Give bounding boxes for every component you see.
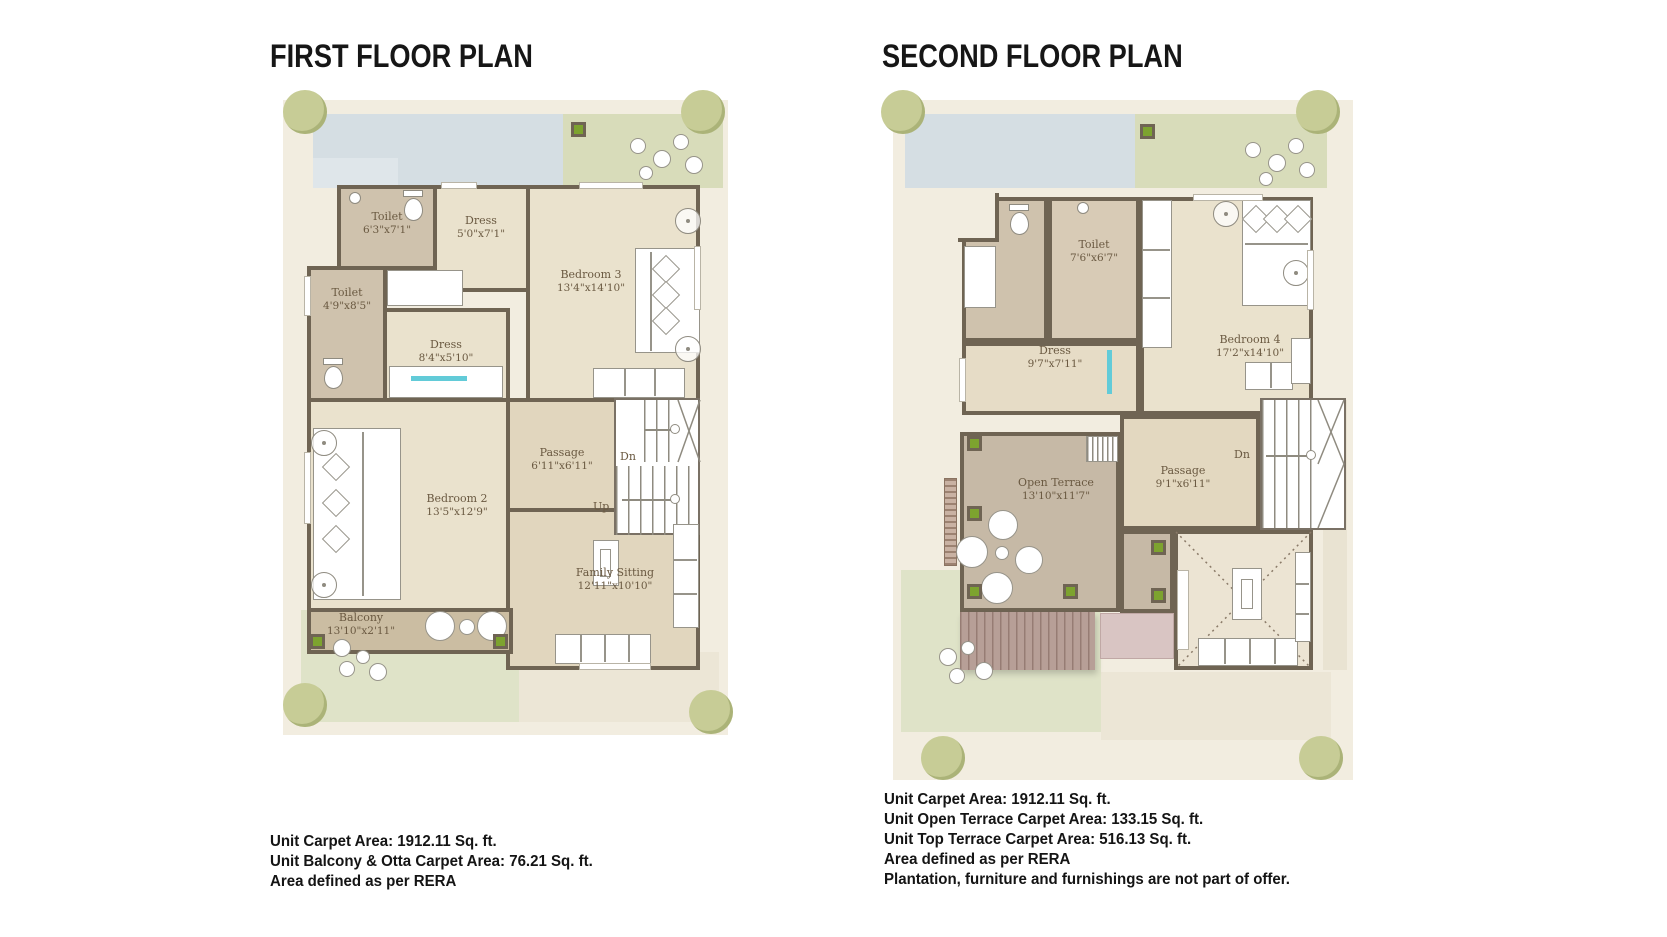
room-dims: 5'0"x7'1" bbox=[441, 228, 521, 241]
planter-icon bbox=[493, 634, 508, 649]
planter-icon bbox=[967, 436, 982, 451]
room-name: Dress bbox=[1015, 344, 1095, 358]
room-dims: 13'10"x2'11" bbox=[319, 625, 403, 638]
room-name: Family Sitting bbox=[560, 566, 670, 580]
garden-chair-icon bbox=[356, 650, 370, 664]
room-name: Toilet bbox=[309, 286, 385, 300]
garden-chair-icon bbox=[975, 662, 993, 680]
footer-line: Area defined as per RERA bbox=[270, 872, 593, 892]
garden-chair-icon bbox=[339, 661, 355, 677]
toilet-wc-icon bbox=[321, 358, 345, 392]
paved-yard bbox=[905, 114, 1135, 188]
window bbox=[579, 663, 651, 670]
window bbox=[1193, 194, 1263, 201]
dress-label: Dress 9'7"x7'11" bbox=[1015, 344, 1095, 371]
garden-chair-icon bbox=[1245, 142, 1261, 158]
dress-a-label: Dress 5'0"x7'1" bbox=[441, 214, 521, 241]
room-dims: 6'11"x6'11" bbox=[522, 460, 602, 473]
garden-chair-icon bbox=[1259, 172, 1273, 186]
second-floor-plan: Toilet 7'6"x6'7" Dress 9'7"x7'11" Bedroo… bbox=[893, 100, 1353, 780]
stairs-down-label: Dn bbox=[1234, 448, 1250, 461]
ceiling-light-icon bbox=[1213, 201, 1239, 227]
room-name: Dress bbox=[441, 214, 521, 228]
stairs-up-label: Up bbox=[593, 500, 609, 513]
footer-line: Unit Balcony & Otta Carpet Area: 76.21 S… bbox=[270, 852, 593, 872]
ceiling-light-icon bbox=[675, 336, 701, 362]
second-floor-title: SECOND FLOOR PLAN bbox=[882, 38, 1183, 75]
garden-chair-icon bbox=[961, 641, 975, 655]
family-sitting-label: Family Sitting 12'11"x10'10" bbox=[560, 566, 670, 593]
planter-icon bbox=[1151, 588, 1166, 603]
room-name: Balcony bbox=[319, 611, 403, 625]
room-dims: 13'4"x14'10" bbox=[541, 282, 641, 295]
stair-winder-lines bbox=[616, 400, 702, 537]
tv-unit-icon bbox=[555, 634, 651, 664]
shower-icon bbox=[1077, 202, 1089, 214]
tree-icon bbox=[283, 90, 327, 134]
room-name: Bedroom 4 bbox=[1200, 333, 1300, 347]
footer-line: Unit Carpet Area: 1912.11 Sq. ft. bbox=[884, 790, 1290, 810]
garden-chair-icon bbox=[369, 663, 387, 681]
toilet-wc-icon bbox=[1007, 204, 1031, 238]
garden-chair-icon bbox=[653, 150, 671, 168]
open-terrace-label: Open Terrace 13'10"x11'7" bbox=[996, 476, 1116, 503]
room-name: Bedroom 2 bbox=[417, 492, 497, 506]
tree-icon bbox=[1299, 736, 1343, 780]
sofa-icon bbox=[1295, 552, 1311, 642]
planter-icon bbox=[310, 634, 325, 649]
first-floor-footer: Unit Carpet Area: 1912.11 Sq. ft. Unit B… bbox=[270, 832, 593, 892]
footer-line: Plantation, furniture and furnishings ar… bbox=[884, 870, 1290, 890]
room-dims: 8'4"x5'10" bbox=[406, 352, 486, 365]
tree-icon bbox=[681, 90, 725, 134]
garden-chair-icon bbox=[333, 639, 351, 657]
window bbox=[959, 358, 966, 402]
bed-icon bbox=[1242, 200, 1311, 306]
balcony-table-icon bbox=[459, 619, 475, 635]
footer-line: Unit Carpet Area: 1912.11 Sq. ft. bbox=[270, 832, 593, 852]
landing-slab bbox=[1100, 613, 1174, 659]
yard-bottom-right bbox=[1101, 672, 1331, 740]
planter-icon bbox=[571, 122, 586, 137]
towel-rail-icon bbox=[411, 376, 467, 381]
shower-icon bbox=[349, 192, 361, 204]
room-dims: 9'1"x6'11" bbox=[1143, 478, 1223, 491]
footer-line: Unit Top Terrace Carpet Area: 516.13 Sq.… bbox=[884, 830, 1290, 850]
sofa-icon bbox=[673, 524, 699, 628]
footer-line: Unit Open Terrace Carpet Area: 133.15 Sq… bbox=[884, 810, 1290, 830]
planter-icon bbox=[1151, 540, 1166, 555]
wardrobe-icon bbox=[1142, 200, 1172, 348]
terrace-chair-icon bbox=[1015, 546, 1043, 574]
towel-rail-icon bbox=[1107, 350, 1112, 394]
balcony-label: Balcony 13'10"x2'11" bbox=[319, 611, 403, 638]
room-dims: 6'3"x7'1" bbox=[347, 224, 427, 237]
dress-b-label: Dress 8'4"x5'10" bbox=[406, 338, 486, 365]
second-floor-footer: Unit Carpet Area: 1912.11 Sq. ft. Unit O… bbox=[884, 790, 1290, 890]
garden-chair-icon bbox=[1288, 138, 1304, 154]
garden-chair-icon bbox=[939, 648, 957, 666]
terrace-door bbox=[1177, 570, 1189, 650]
staircase bbox=[614, 398, 700, 535]
planter-icon bbox=[1140, 124, 1155, 139]
tree-icon bbox=[921, 736, 965, 780]
building-corner-cut bbox=[958, 193, 999, 242]
stair-winder-lines bbox=[1262, 400, 1348, 532]
tree-icon bbox=[1296, 90, 1340, 134]
garden-chair-icon bbox=[1299, 162, 1315, 178]
paved-yard-step bbox=[313, 158, 398, 188]
tree-icon bbox=[283, 683, 327, 727]
bedroom3-label: Bedroom 3 13'4"x14'10" bbox=[541, 268, 641, 295]
garden-chair-icon bbox=[673, 134, 689, 150]
first-floor-title: FIRST FLOOR PLAN bbox=[270, 38, 533, 75]
planter-icon bbox=[967, 584, 982, 599]
bedroom4-label: Bedroom 4 17'2"x14'10" bbox=[1200, 333, 1300, 360]
floor-plan-sheet: FIRST FLOOR PLAN SECOND FLOOR PLAN bbox=[0, 0, 1667, 937]
room-dims: 7'6"x6'7" bbox=[1054, 252, 1134, 265]
footer-line: Area defined as per RERA bbox=[884, 850, 1290, 870]
window bbox=[579, 182, 643, 189]
planter-icon bbox=[967, 506, 982, 521]
basin-counter bbox=[387, 270, 463, 306]
dresser-icon bbox=[593, 368, 685, 398]
toilet-b-label: Toilet 4'9"x8'5" bbox=[309, 286, 385, 313]
dresser-icon bbox=[1245, 362, 1293, 390]
room-name: Passage bbox=[1143, 464, 1223, 478]
window bbox=[304, 452, 311, 524]
ladder-icon bbox=[1086, 436, 1118, 462]
staircase bbox=[1260, 398, 1346, 530]
room-dims: 13'10"x11'7" bbox=[996, 490, 1116, 503]
window bbox=[1307, 250, 1314, 310]
window bbox=[441, 182, 477, 189]
terrace-chair-icon bbox=[981, 572, 1013, 604]
closet-icon bbox=[389, 366, 503, 398]
room-name: Toilet bbox=[1054, 238, 1134, 252]
window bbox=[694, 246, 701, 310]
room-dims: 13'5"x12'9" bbox=[417, 506, 497, 519]
wall bbox=[995, 193, 999, 242]
room-dims: 17'2"x14'10" bbox=[1200, 347, 1300, 360]
balcony-chair-icon bbox=[425, 611, 455, 641]
ceiling-light-icon bbox=[1283, 260, 1309, 286]
toilet-label: Toilet 7'6"x6'7" bbox=[1054, 238, 1134, 265]
garden-chair-icon bbox=[685, 156, 703, 174]
toilet-a-label: Toilet 6'3"x7'1" bbox=[347, 210, 427, 237]
ceiling-light-icon bbox=[311, 572, 337, 598]
garden-chair-icon bbox=[949, 668, 965, 684]
room-dims: 9'7"x7'11" bbox=[1015, 358, 1095, 371]
exterior-steps bbox=[960, 612, 1095, 670]
passage-label: Passage 9'1"x6'11" bbox=[1143, 464, 1223, 491]
garden-chair-icon bbox=[1268, 154, 1286, 172]
tree-icon bbox=[689, 690, 733, 734]
basin-counter bbox=[964, 246, 996, 308]
room-name: Toilet bbox=[347, 210, 427, 224]
room-toilet bbox=[1048, 197, 1140, 342]
first-floor-plan: Toilet 6'3"x7'1" Dress 5'0"x7'1" Bedroom… bbox=[283, 100, 728, 735]
planter-icon bbox=[1063, 584, 1078, 599]
ceiling-light-icon bbox=[675, 208, 701, 234]
bedroom2-label: Bedroom 2 13'5"x12'9" bbox=[417, 492, 497, 519]
passage-label: Passage 6'11"x6'11" bbox=[522, 446, 602, 473]
ceiling-light-icon bbox=[311, 430, 337, 456]
garden-chair-icon bbox=[630, 138, 646, 154]
coffee-table-icon bbox=[1232, 568, 1262, 620]
room-name: Dress bbox=[406, 338, 486, 352]
room-dims: 12'11"x10'10" bbox=[560, 580, 670, 593]
sofa-icon bbox=[1198, 638, 1298, 666]
wall bbox=[958, 238, 999, 242]
room-name: Open Terrace bbox=[996, 476, 1116, 490]
room-dims: 4'9"x8'5" bbox=[309, 300, 385, 313]
room-name: Bedroom 3 bbox=[541, 268, 641, 282]
tree-icon bbox=[881, 90, 925, 134]
terrace-table-icon bbox=[995, 546, 1009, 560]
terrace-chair-icon bbox=[956, 536, 988, 568]
garden-chair-icon bbox=[639, 166, 653, 180]
stairs-down-label: Dn bbox=[620, 450, 636, 463]
terrace-chair-icon bbox=[988, 510, 1018, 540]
room-name: Passage bbox=[522, 446, 602, 460]
